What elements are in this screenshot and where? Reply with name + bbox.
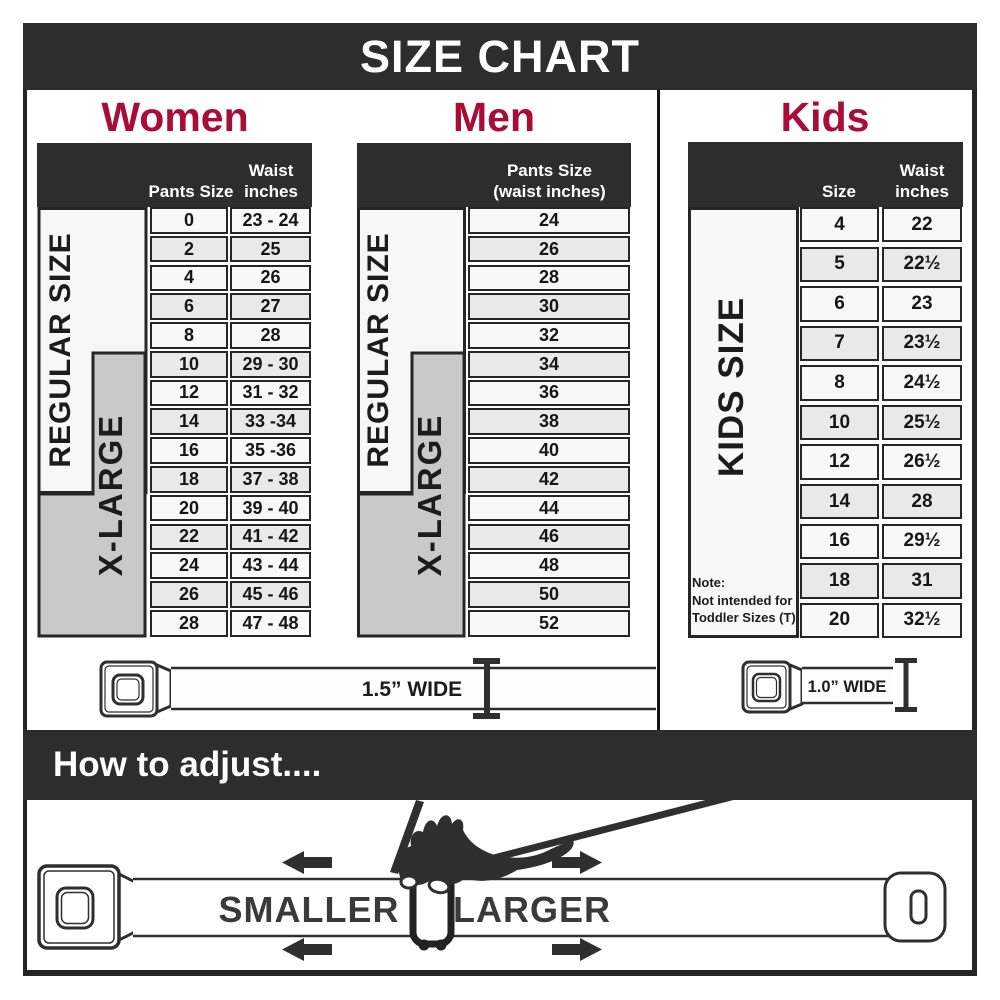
- table-cell: 31: [882, 563, 962, 598]
- women-size-category-labels: REGULAR SIZE X-LARGE: [37, 207, 148, 639]
- table-cell: 22½: [882, 247, 962, 282]
- women-regular-size-label: REGULAR SIZE: [44, 232, 77, 467]
- size-chart-page: SIZE CHART Women Men Kids Pants Size Wai…: [0, 0, 1000, 1000]
- table-cell: 33 -34: [230, 408, 311, 435]
- men-size-category-labels: REGULAR SIZE X-LARGE: [357, 207, 466, 639]
- adult-belt-width-diagram: 1.5” WIDE: [95, 650, 658, 730]
- table-cell: 25½: [882, 405, 962, 440]
- table-cell: 24: [468, 207, 630, 234]
- table-cell: 6: [150, 293, 228, 320]
- how-to-adjust-illustration-box: SMALLER LARGER: [23, 800, 977, 976]
- table-cell: 2: [150, 236, 228, 263]
- table-cell: 41 - 42: [230, 524, 311, 551]
- table-cell: 28: [230, 322, 311, 349]
- table-cell: 22: [150, 524, 228, 551]
- table-cell: 24: [150, 552, 228, 579]
- table-cell: 29½: [882, 524, 962, 559]
- seatbelt-buckle-icon: [101, 662, 171, 716]
- arrow-left-top-icon: [282, 851, 332, 874]
- table-cell: 12: [150, 380, 228, 407]
- kids-belt-width-label: 1.0” WIDE: [808, 678, 887, 696]
- frame-right-border: [972, 90, 977, 730]
- table-cell: 8: [150, 322, 228, 349]
- table-cell: 47 - 48: [230, 610, 311, 637]
- table-cell: 24½: [882, 365, 962, 400]
- table-cell: 34: [468, 351, 630, 378]
- men-table: 242628303234363840424446485052: [468, 207, 630, 639]
- women-col-waist: Waist inches: [232, 160, 310, 203]
- table-cell: 32: [468, 322, 630, 349]
- arrow-left-bottom-icon: [282, 938, 332, 961]
- kids-col-waist: Waist inches: [882, 160, 962, 203]
- table-cell: 48: [468, 552, 630, 579]
- width-measure-icon: [895, 658, 917, 712]
- kids-col-waist-line2: inches: [882, 181, 962, 202]
- adult-belt-width-label: 1.5” WIDE: [362, 678, 462, 701]
- table-cell: 20: [800, 603, 879, 638]
- table-cell: 40: [468, 437, 630, 464]
- table-cell: 25: [230, 236, 311, 263]
- table-cell: 29 - 30: [230, 351, 311, 378]
- women-col-pants-size: Pants Size: [147, 181, 235, 202]
- table-cell: 20: [150, 495, 228, 522]
- women-table: 023 - 242254266278281029 - 301231 - 3214…: [150, 207, 311, 639]
- table-cell: 23 - 24: [230, 207, 311, 234]
- table-cell: 23½: [882, 326, 962, 361]
- women-xlarge-label: X-LARGE: [92, 414, 129, 577]
- table-cell: 35 -36: [230, 437, 311, 464]
- how-to-adjust-heading: How to adjust....: [53, 745, 321, 785]
- table-cell: 38: [468, 408, 630, 435]
- table-cell: 45 - 46: [230, 581, 311, 608]
- men-xlarge-label: X-LARGE: [411, 414, 448, 577]
- women-table-header: Pants Size Waist inches: [37, 143, 312, 207]
- kids-size-label: KIDS SIZE: [712, 297, 751, 477]
- women-col-waist-line2: inches: [232, 181, 310, 202]
- kids-col-waist-line1: Waist: [882, 160, 962, 181]
- table-cell: 30: [468, 293, 630, 320]
- kids-note-line3: Toddler Sizes (T): [692, 609, 800, 627]
- table-cell: 12: [800, 444, 879, 479]
- men-col-pants-size: Pants Size (waist inches): [462, 160, 637, 203]
- table-cell: 26½: [882, 444, 962, 479]
- men-col-line1: Pants Size: [462, 160, 637, 181]
- men-table-header: Pants Size (waist inches): [357, 143, 631, 207]
- table-cell: 8: [800, 365, 879, 400]
- table-cell: 36: [468, 380, 630, 407]
- table-cell: 23: [882, 286, 962, 321]
- kids-note-line1: Note:: [692, 574, 800, 592]
- women-heading: Women: [75, 94, 275, 140]
- table-cell: 37 - 38: [230, 466, 311, 493]
- table-cell: 32½: [882, 603, 962, 638]
- table-cell: 43 - 44: [230, 552, 311, 579]
- frame-left-border: [23, 90, 27, 730]
- seatbelt-buckle-icon: [743, 662, 802, 712]
- table-cell: 16: [150, 437, 228, 464]
- table-cell: 31 - 32: [230, 380, 311, 407]
- table-cell: 44: [468, 495, 630, 522]
- table-cell: 27: [230, 293, 311, 320]
- table-cell: 26: [468, 236, 630, 263]
- table-cell: 26: [230, 265, 311, 292]
- table-cell: 46: [468, 524, 630, 551]
- table-cell: 42: [468, 466, 630, 493]
- table-cell: 16: [800, 524, 879, 559]
- kids-heading: Kids: [735, 94, 915, 140]
- men-heading: Men: [404, 94, 584, 140]
- table-cell: 28: [468, 265, 630, 292]
- table-cell: 26: [150, 581, 228, 608]
- table-cell: 18: [800, 563, 879, 598]
- table-cell: 14: [150, 408, 228, 435]
- table-cell: 22: [882, 207, 962, 242]
- arrow-right-bottom-icon: [552, 938, 602, 961]
- kids-note: Note: Not intended for Toddler Sizes (T): [692, 574, 800, 627]
- table-cell: 4: [800, 207, 879, 242]
- how-to-adjust-bar: How to adjust....: [23, 730, 977, 800]
- table-cell: 4: [150, 265, 228, 292]
- table-cell: 18: [150, 466, 228, 493]
- kids-col-size: Size: [799, 181, 879, 202]
- kids-table: 422522½623723½824½1025½1226½14281629½183…: [800, 207, 962, 638]
- table-cell: 50: [468, 581, 630, 608]
- kids-belt-width-diagram: 1.0” WIDE: [735, 652, 920, 718]
- table-cell: 7: [800, 326, 879, 361]
- table-cell: 10: [800, 405, 879, 440]
- table-cell: 10: [150, 351, 228, 378]
- table-cell: 28: [150, 610, 228, 637]
- men-regular-size-label: REGULAR SIZE: [362, 232, 395, 467]
- table-cell: 5: [800, 247, 879, 282]
- kids-table-header: Size Waist inches: [688, 142, 963, 207]
- women-col-waist-line1: Waist: [232, 160, 310, 181]
- table-cell: 28: [882, 484, 962, 519]
- how-to-adjust-diagram: SMALLER LARGER: [27, 800, 972, 970]
- table-cell: 52: [468, 610, 630, 637]
- larger-label: LARGER: [453, 889, 611, 930]
- title-bar: SIZE CHART: [23, 23, 977, 90]
- table-cell: 6: [800, 286, 879, 321]
- men-col-line2: (waist inches): [462, 181, 637, 202]
- belt-tip: [885, 873, 945, 941]
- table-cell: 39 - 40: [230, 495, 311, 522]
- seatbelt-buckle-icon: [39, 866, 135, 948]
- page-title: SIZE CHART: [360, 31, 640, 83]
- table-cell: 0: [150, 207, 228, 234]
- smaller-label: SMALLER: [219, 889, 400, 930]
- section-divider: [657, 90, 660, 730]
- table-cell: 14: [800, 484, 879, 519]
- kids-note-line2: Not intended for: [692, 592, 800, 610]
